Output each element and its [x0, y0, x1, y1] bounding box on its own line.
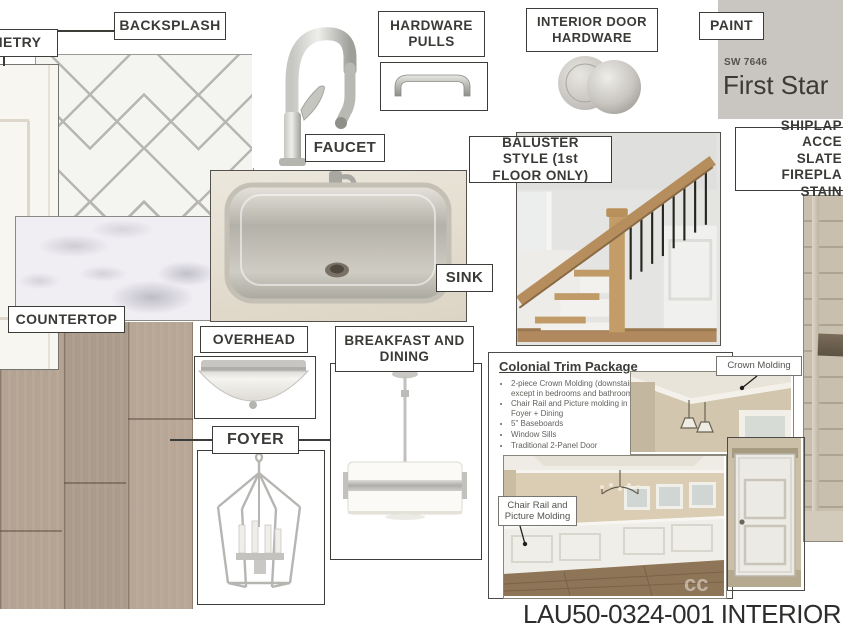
label-overhead: OVERHEAD	[200, 326, 308, 353]
label-shiplap-accent: SHIPLAP ACCE SLATE FIREPLA STAIN	[735, 127, 843, 191]
chair-rail-pointer-line	[512, 524, 534, 550]
paint-code: SW 7646	[724, 57, 767, 68]
trim-bullet: Window Sills	[511, 430, 641, 440]
hardware-pull-image	[380, 62, 488, 111]
label-hardware-pulls: HARDWARE PULLS	[378, 11, 485, 57]
chair-rail-tag: Chair Rail and Picture Molding	[498, 496, 577, 526]
shiplap-trim-board	[812, 196, 819, 541]
plank-joint	[64, 482, 126, 484]
overhead-light-image	[194, 356, 316, 419]
door-knob-icon	[553, 53, 653, 117]
door-panel-bevel	[0, 119, 29, 122]
photo-watermark: cc	[684, 571, 708, 596]
paint-name: First Star	[723, 70, 828, 101]
shiplap-fireplace-image	[803, 195, 843, 542]
label-shiplap-line2: SLATE FIREPLA	[744, 151, 842, 184]
plank-joint	[128, 418, 193, 420]
trim-bullet: 5" Baseboards	[511, 419, 641, 429]
label-breakfast-dining: BREAKFAST AND DINING	[335, 326, 474, 372]
interior-door-photo	[727, 437, 805, 591]
foyer-lantern-image	[197, 450, 325, 605]
trim-bullet: Chair Rail and Picture molding in Foyer …	[511, 399, 641, 418]
flush-mount-light-icon	[195, 357, 312, 415]
design-board: { "labels": { "cabinetry": "CABINETRY", …	[0, 0, 843, 632]
sink-image	[210, 170, 467, 322]
label-backsplash: BACKSPLASH	[114, 12, 226, 40]
hearth-floor	[804, 511, 843, 541]
sink-icon	[211, 171, 463, 318]
drum-pendant-icon	[331, 364, 478, 556]
connector-line	[170, 439, 212, 441]
footer-code: LAU50-0324-001 INTERIOR	[523, 599, 841, 630]
mantel	[818, 334, 843, 357]
label-baluster-style: BALUSTER STYLE (1st FLOOR ONLY)	[469, 136, 612, 183]
label-cabinetry: CABINETRY	[0, 29, 58, 57]
lantern-chandelier-icon	[198, 451, 321, 601]
label-foyer: FOYER	[212, 426, 299, 454]
label-faucet: FAUCET	[305, 134, 385, 162]
connector-line	[3, 57, 5, 66]
crown-molding-tag: Crown Molding	[716, 356, 802, 376]
connector-line	[298, 439, 330, 441]
crown-pointer-line	[735, 374, 765, 394]
label-interior-door-hardware: INTERIOR DOOR HARDWARE	[526, 8, 658, 52]
label-countertop: COUNTERTOP	[8, 306, 125, 333]
plank-joint	[0, 530, 62, 532]
shiplap-lines	[804, 196, 843, 541]
trim-bullet: 2-piece Crown Molding (downstairs except…	[511, 379, 641, 398]
label-paint: PAINT	[699, 12, 764, 40]
dining-room-graphic: cc	[504, 456, 724, 596]
trim-bullet: Traditional 2-Panel Door	[511, 441, 641, 451]
label-shiplap-line1: SHIPLAP ACCE	[744, 118, 842, 151]
two-panel-door-graphic	[728, 438, 801, 587]
label-shiplap-line3: STAIN	[744, 184, 842, 200]
connector-line	[58, 30, 114, 32]
trim-package-title: Colonial Trim Package	[499, 359, 638, 374]
dining-room-photo: cc	[503, 455, 727, 599]
door-knob-image	[553, 53, 653, 117]
drawer-pull-icon	[381, 63, 484, 107]
trim-package-bullets: 2-piece Crown Molding (downstairs except…	[499, 379, 641, 451]
pendant-light-image	[330, 363, 482, 560]
label-sink: SINK	[436, 264, 493, 292]
